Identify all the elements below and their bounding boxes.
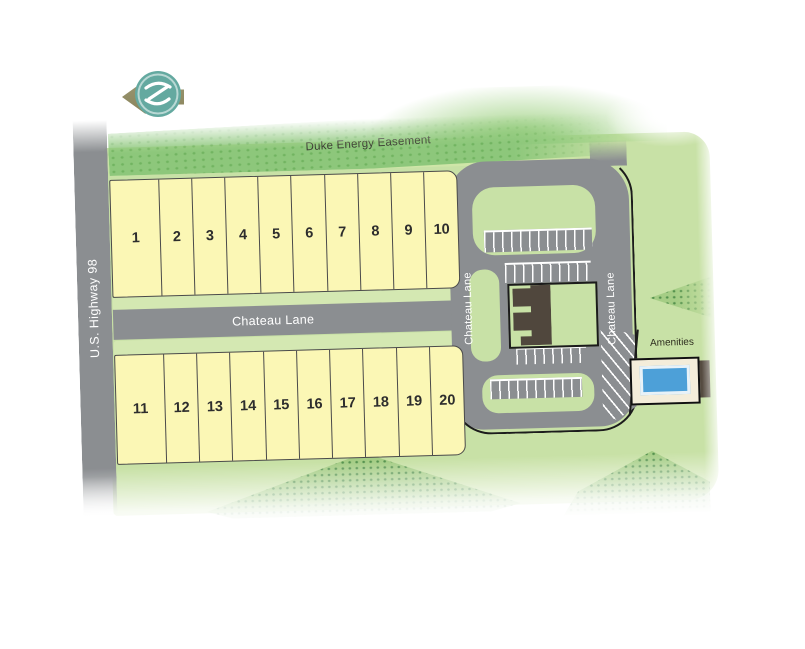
lot-7[interactable]: 7 bbox=[324, 174, 360, 291]
site-plan-map: Duke Energy Easement U.S. Highway 98 Cha… bbox=[66, 93, 727, 531]
lot-11[interactable]: 11 bbox=[115, 355, 166, 464]
lot-13[interactable]: 13 bbox=[196, 353, 232, 462]
lot-19[interactable]: 19 bbox=[396, 347, 432, 456]
lot-12[interactable]: 12 bbox=[163, 354, 199, 463]
site-plan-screen: Duke Energy Easement U.S. Highway 98 Cha… bbox=[0, 0, 805, 649]
lot-8[interactable]: 8 bbox=[357, 173, 393, 290]
chateau-lane-label: Chateau Lane bbox=[232, 312, 314, 328]
lot-3[interactable]: 3 bbox=[191, 178, 227, 295]
parking-row bbox=[516, 346, 586, 365]
lot-1[interactable]: 1 bbox=[110, 180, 161, 297]
lot-17[interactable]: 17 bbox=[329, 349, 365, 458]
parking-row bbox=[490, 377, 583, 400]
lot-20[interactable]: 20 bbox=[429, 346, 465, 455]
lot-10[interactable]: 10 bbox=[423, 171, 459, 288]
lot-15[interactable]: 15 bbox=[263, 351, 299, 460]
amenities-label: Amenities bbox=[637, 336, 707, 349]
lot-9[interactable]: 9 bbox=[390, 172, 426, 289]
lot-row-top: 1 2 3 4 5 6 7 8 9 10 bbox=[109, 170, 460, 298]
parking-row bbox=[484, 228, 593, 253]
lot-18[interactable]: 18 bbox=[362, 348, 398, 457]
lot-6[interactable]: 6 bbox=[291, 175, 327, 292]
swimming-pool bbox=[640, 365, 691, 395]
fade-top-right bbox=[606, 82, 738, 148]
parking-row bbox=[505, 261, 592, 283]
lot-14[interactable]: 14 bbox=[230, 352, 266, 461]
lot-5[interactable]: 5 bbox=[257, 176, 293, 293]
pool-deck bbox=[629, 357, 700, 406]
lot-4[interactable]: 4 bbox=[224, 177, 260, 294]
easement-label: Duke Energy Easement bbox=[305, 134, 431, 153]
lot-2[interactable]: 2 bbox=[158, 179, 194, 296]
lot-16[interactable]: 16 bbox=[296, 350, 332, 459]
lot-row-bottom: 11 12 13 14 15 16 17 18 19 20 bbox=[114, 345, 466, 465]
